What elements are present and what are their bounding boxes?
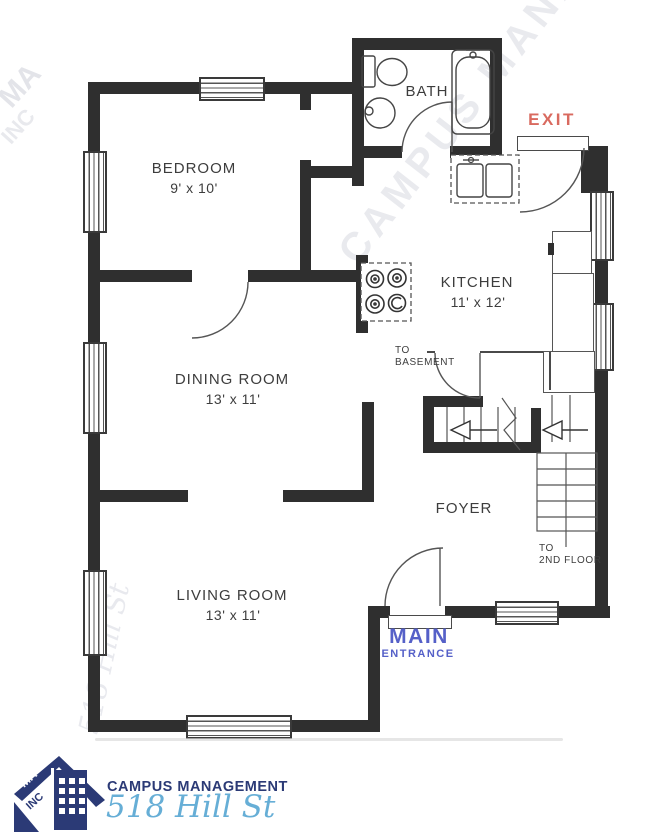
stove-icon [361, 263, 411, 321]
exit-label: EXIT [528, 110, 576, 130]
living-room-label: LIVING ROOM [176, 587, 287, 604]
to-basement-label: TO BASEMENT [395, 345, 455, 369]
living-room-dims: 13' x 11' [206, 607, 261, 623]
bath-door-arc [402, 102, 452, 152]
floor-plan-canvas: CAMPUS MANAGEMENT 518 Hill St MA INC [0, 0, 650, 836]
scan-artifact-line [95, 738, 563, 741]
bedroom-dims: 9' x 10' [170, 180, 217, 196]
house-logo-icon: MA INC [12, 754, 108, 832]
dining-room-dims: 13' x 11' [206, 391, 261, 407]
company-logo: MA INC [12, 754, 108, 832]
to-basement-line1: TO [395, 345, 455, 357]
footer-address: 518 Hill St [106, 789, 275, 825]
bath-label: BATH [406, 83, 449, 100]
to-second-floor-line2: 2ND FLOOR [539, 555, 602, 567]
kitchen-sink-icon [451, 155, 519, 203]
to-second-floor-line1: TO [539, 543, 602, 555]
foyer-label: FOYER [436, 500, 493, 517]
kitchen-dims: 11' x 12' [451, 294, 506, 310]
stairs-to-second-floor [537, 453, 597, 547]
main-door-arc [385, 548, 443, 606]
bath-sink-icon [365, 98, 395, 128]
stairs-direction-arrows [451, 421, 588, 439]
dining-room-label: DINING ROOM [175, 371, 289, 388]
bedroom-door-arc [192, 282, 248, 338]
main-entrance-sublabel: ENTRANCE [381, 648, 454, 660]
exit-door-arc [520, 148, 584, 212]
main-entrance-label: MAIN [389, 625, 449, 649]
bathtub-icon [452, 50, 494, 134]
kitchen-label: KITCHEN [441, 274, 514, 291]
bedroom-label: BEDROOM [152, 160, 237, 177]
to-second-floor-label: TO 2ND FLOOR [539, 543, 602, 567]
to-basement-line2: BASEMENT [395, 357, 455, 369]
toilet-icon [362, 56, 407, 87]
